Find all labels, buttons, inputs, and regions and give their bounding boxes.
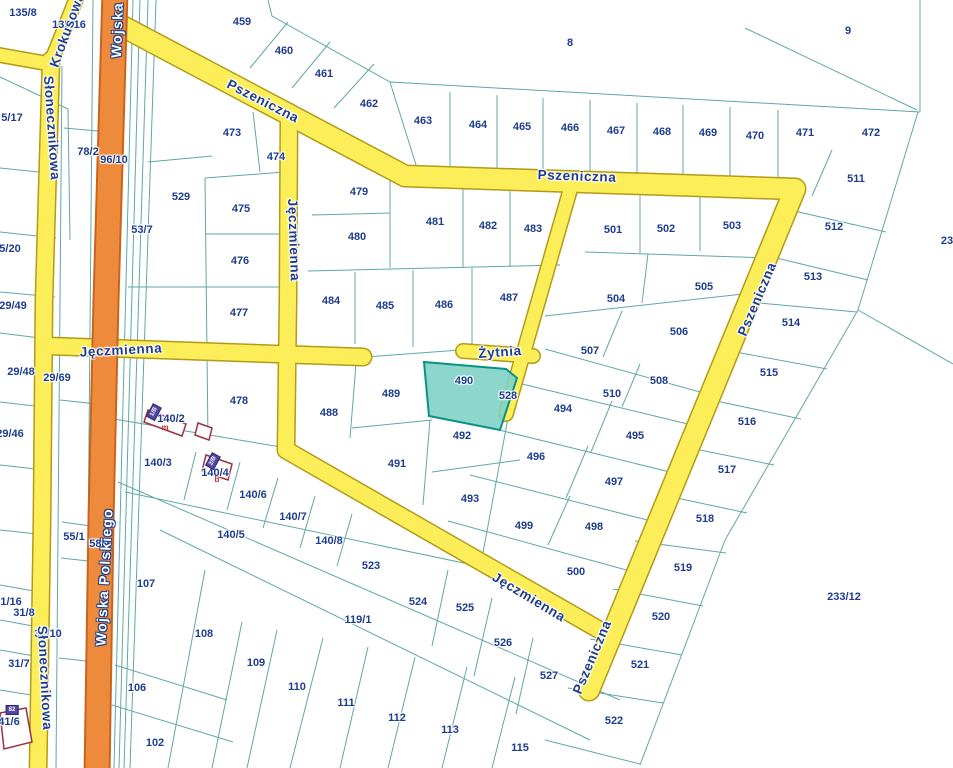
boundaries-west (0, 0, 156, 768)
cadastral-map[interactable]: 135/8135/165/1778/296/1053/75/2029/4929/… (0, 0, 953, 768)
road-border-medium (38, 60, 610, 768)
map-canvas (0, 0, 953, 768)
road-wojska-polskiego (97, 0, 115, 768)
highlighted-parcel-490[interactable] (424, 362, 517, 430)
road-slonecznikowa-jeczmienna (38, 60, 610, 768)
